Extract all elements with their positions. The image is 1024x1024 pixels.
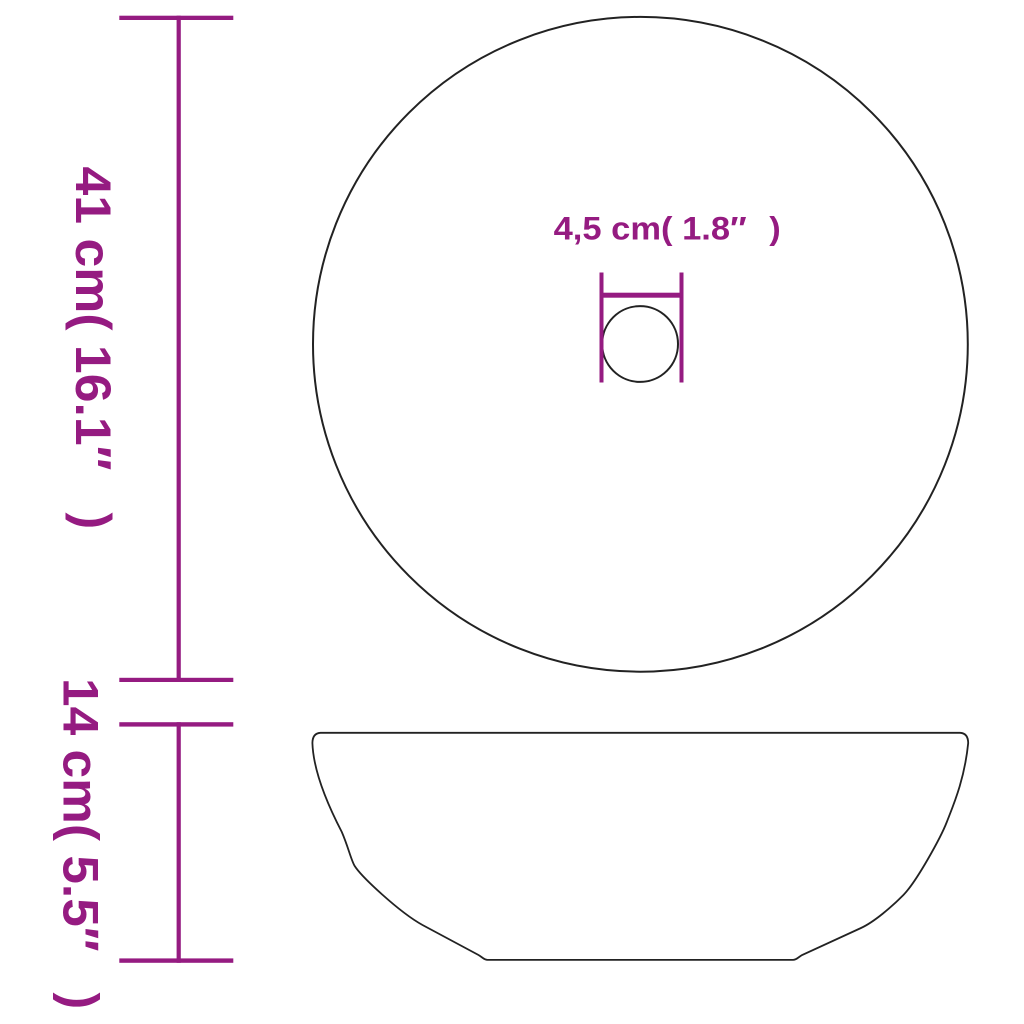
svg-text:4,5 cm( 1.8″: 4,5 cm( 1.8″: [554, 211, 747, 247]
svg-text:14 cm( 5.5″: 14 cm( 5.5″: [53, 678, 109, 952]
svg-text:41 cm( 16.1″: 41 cm( 16.1″: [65, 167, 121, 471]
svg-text:): ): [769, 211, 781, 247]
svg-text:): ): [53, 993, 109, 1010]
svg-text:): ): [65, 513, 121, 530]
